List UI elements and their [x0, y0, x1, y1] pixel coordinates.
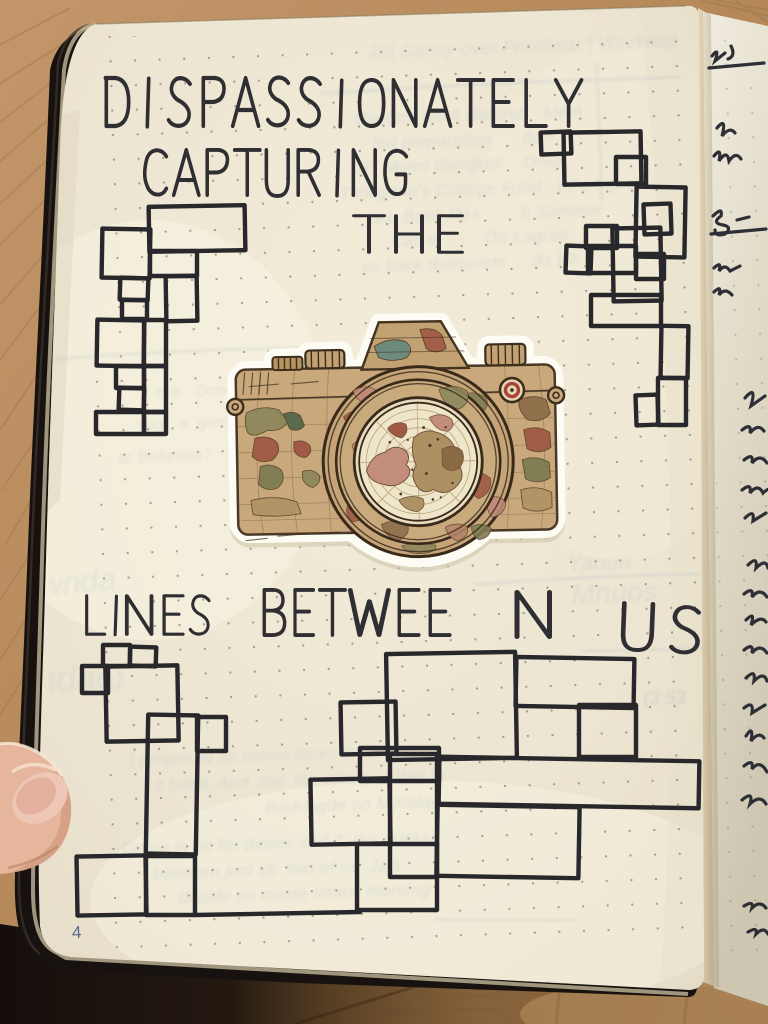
svg-text:Mnuos: Mnuos	[571, 575, 658, 609]
svg-text:(3:53: (3:53	[643, 687, 687, 708]
svg-text:sug a gome: sug a gome	[137, 414, 240, 435]
svg-text:to Bohemia?: to Bohemia?	[118, 447, 213, 467]
svg-text:Yaoun: Yaoun	[567, 549, 632, 576]
svg-text:4: 4	[72, 923, 82, 942]
